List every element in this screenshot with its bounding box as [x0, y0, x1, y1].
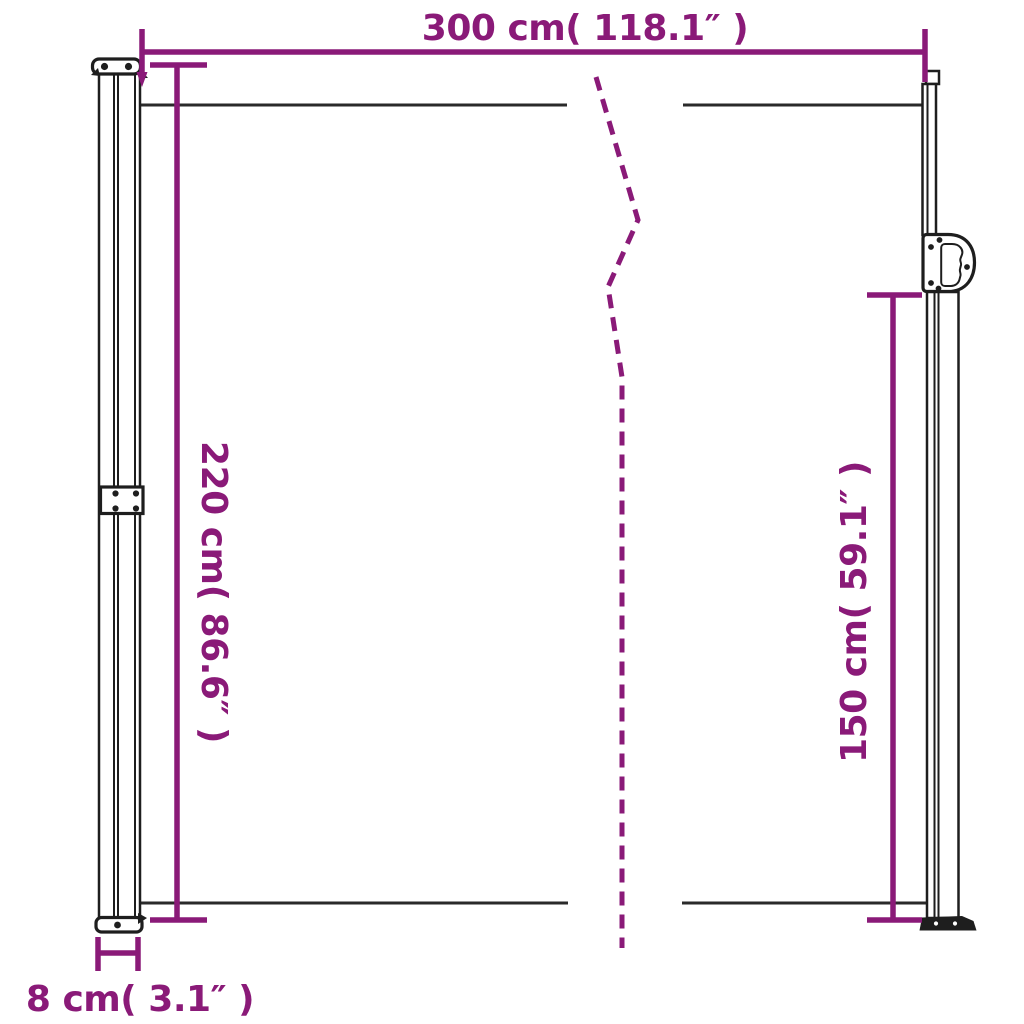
- screw-dot: [928, 244, 934, 250]
- right-post-upper-body: [923, 84, 937, 235]
- dim-label-depth-bottom: 8 cm( 3.1″ ): [26, 979, 254, 1020]
- right-post-top-cap: [926, 71, 939, 84]
- screw-dot: [112, 490, 118, 496]
- awning-fabric-edges: [139, 105, 927, 903]
- dimension-height-left: 220 cm( 86.6″ ): [150, 65, 234, 920]
- screw-dot: [101, 63, 108, 70]
- right-post-lower-body: [927, 292, 959, 918]
- screw-dot: [125, 63, 132, 70]
- screw-dot: [937, 237, 943, 243]
- center-break-dashed-line: [596, 77, 638, 948]
- base-plate-notch: [934, 921, 938, 925]
- right-post-handle: [923, 235, 975, 292]
- left-pole-top-cap: [93, 59, 141, 74]
- dim-label-height-left: 220 cm( 86.6″ ): [193, 441, 234, 743]
- screw-dot: [133, 490, 139, 496]
- screw-dot: [114, 922, 121, 929]
- dim-label-height-right: 150 cm( 59.1″ ): [834, 461, 875, 763]
- left-cassette-pole: [91, 59, 148, 932]
- dim-label-width-top: 300 cm( 118.1″ ): [422, 8, 748, 49]
- screw-dot: [964, 264, 970, 270]
- screw-dot: [112, 505, 118, 511]
- screw-dot: [133, 505, 139, 511]
- awning-dimension-diagram: 300 cm( 118.1″ ) 220 cm( 86.6″ ) 150 cm(…: [0, 0, 1024, 1024]
- diagram-svg: 300 cm( 118.1″ ) 220 cm( 86.6″ ) 150 cm(…: [0, 0, 1024, 1024]
- dimension-depth-bottom: 8 cm( 3.1″ ): [26, 937, 254, 1020]
- base-plate-notch: [953, 921, 957, 925]
- dimension-height-right: 150 cm( 59.1″ ): [834, 295, 922, 920]
- dimension-width-top: 300 cm( 118.1″ ): [137, 8, 926, 87]
- screw-dot: [936, 286, 942, 292]
- right-post-base-plate: [920, 916, 977, 931]
- right-post: [920, 71, 977, 931]
- screw-dot: [928, 280, 934, 286]
